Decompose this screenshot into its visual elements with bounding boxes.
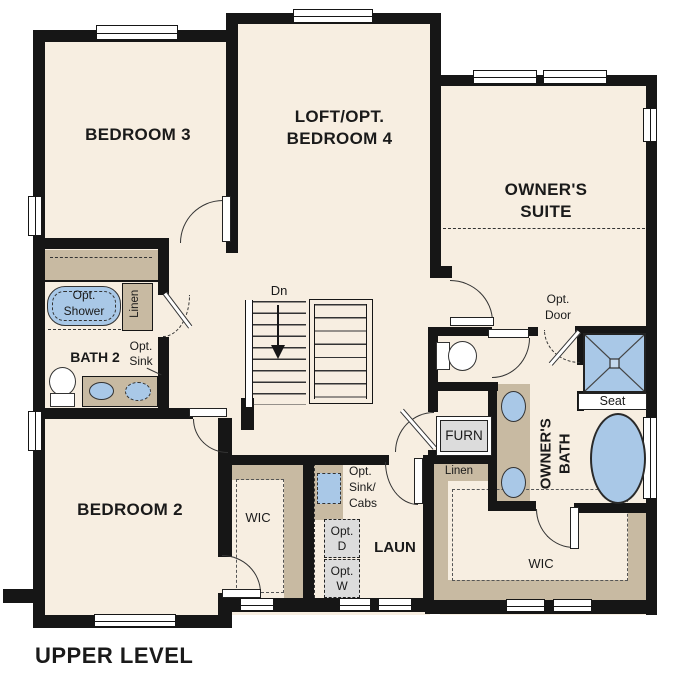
wall bbox=[303, 455, 314, 600]
furnace-label: FURN bbox=[445, 428, 483, 444]
floor-plan: Seat FURN Opt. D Opt. W BEDROOM 3 LOFT/O… bbox=[0, 0, 687, 687]
window bbox=[643, 108, 657, 142]
shower-x-icon bbox=[585, 335, 644, 391]
optional-sink-cabs-label: Opt. Sink/ Cabs bbox=[349, 463, 411, 512]
wall bbox=[33, 30, 45, 627]
plan-title: UPPER LEVEL bbox=[35, 643, 295, 669]
window bbox=[506, 599, 545, 612]
window bbox=[94, 614, 176, 627]
laundry-optional-dashed-line bbox=[314, 458, 315, 598]
room-label-loft-opt-bedroom-4: LOFT/OPT. BEDROOM 4 bbox=[252, 106, 427, 150]
room-label-laundry: LAUN bbox=[362, 539, 428, 557]
window bbox=[96, 25, 178, 40]
linen-label-right: Linen bbox=[428, 465, 490, 479]
wall bbox=[528, 327, 538, 336]
wall bbox=[218, 455, 306, 465]
room-label-owners-suite: OWNER'S SUITE bbox=[460, 179, 632, 223]
laundry-optional-sink bbox=[317, 473, 341, 504]
door-leaf bbox=[450, 317, 494, 326]
door-leaf bbox=[222, 196, 231, 242]
stairs-down-label: Dn bbox=[263, 283, 295, 298]
window bbox=[293, 9, 373, 23]
wall bbox=[646, 75, 657, 615]
stair-rail bbox=[245, 300, 253, 407]
owners-bathtub bbox=[590, 413, 646, 504]
closet-rod-dashed-line bbox=[50, 257, 152, 258]
bedroom2-wic-shelf-right bbox=[284, 463, 303, 598]
bath2-optional-sink bbox=[125, 382, 151, 401]
owners-bath-sink bbox=[501, 467, 526, 498]
wall bbox=[430, 266, 452, 278]
stair-arrowhead-icon bbox=[271, 345, 285, 359]
stair-upper-flight bbox=[309, 299, 373, 404]
room-label-owners-bath: OWNER'S BATH bbox=[537, 394, 575, 514]
owners-wic-shelf-bottom bbox=[430, 580, 646, 600]
wall bbox=[430, 13, 441, 268]
optional-dryer-label: Opt. D bbox=[331, 524, 354, 554]
window bbox=[378, 598, 412, 611]
room-label-wic-bedroom2: WIC bbox=[226, 510, 290, 525]
window bbox=[473, 70, 537, 84]
toilet-bowl bbox=[49, 367, 76, 396]
wall bbox=[574, 503, 653, 513]
wall bbox=[33, 408, 193, 419]
wall bbox=[33, 238, 163, 249]
toilet-tank bbox=[50, 393, 75, 407]
bath2-sink bbox=[89, 382, 114, 400]
toilet-bowl bbox=[448, 341, 477, 371]
linen-label-left: Linen bbox=[129, 278, 143, 330]
window bbox=[543, 70, 607, 84]
wall bbox=[488, 501, 536, 511]
window bbox=[240, 598, 274, 611]
window bbox=[339, 598, 371, 611]
tub-alcove-dashed-line bbox=[48, 329, 121, 330]
stair-direction-arrow bbox=[277, 305, 279, 347]
optional-dryer-box: Opt. D bbox=[324, 519, 360, 558]
door-leaf bbox=[414, 458, 423, 504]
door-leaf bbox=[222, 589, 261, 598]
shower-seat: Seat bbox=[578, 393, 647, 410]
room-label-wic-owners: WIC bbox=[509, 556, 573, 571]
window bbox=[28, 411, 42, 451]
optional-washer-box: Opt. W bbox=[324, 559, 360, 598]
optional-sink-label: Opt. Sink bbox=[118, 339, 164, 369]
furnace-closet: FURN bbox=[436, 416, 492, 456]
owners-suite-dashed-line bbox=[443, 228, 645, 229]
room-label-bedroom-3: BEDROOM 3 bbox=[48, 124, 228, 146]
room-label-bedroom-2: BEDROOM 2 bbox=[40, 499, 220, 521]
optional-shower-label: Opt. Shower bbox=[49, 288, 119, 319]
wall bbox=[3, 589, 34, 603]
door-leaf bbox=[488, 329, 529, 338]
furnace-unit: FURN bbox=[440, 420, 488, 452]
stair-treads-upper-flight bbox=[314, 304, 367, 399]
owners-bath-sink bbox=[501, 391, 526, 422]
door-leaf bbox=[189, 408, 227, 417]
seat-label: Seat bbox=[600, 394, 626, 409]
optional-washer-label: Opt. W bbox=[331, 564, 354, 594]
window bbox=[553, 599, 592, 612]
window bbox=[28, 196, 42, 236]
owners-shower bbox=[583, 333, 646, 393]
wall bbox=[158, 238, 169, 295]
optional-door-label: Opt. Door bbox=[533, 292, 583, 323]
